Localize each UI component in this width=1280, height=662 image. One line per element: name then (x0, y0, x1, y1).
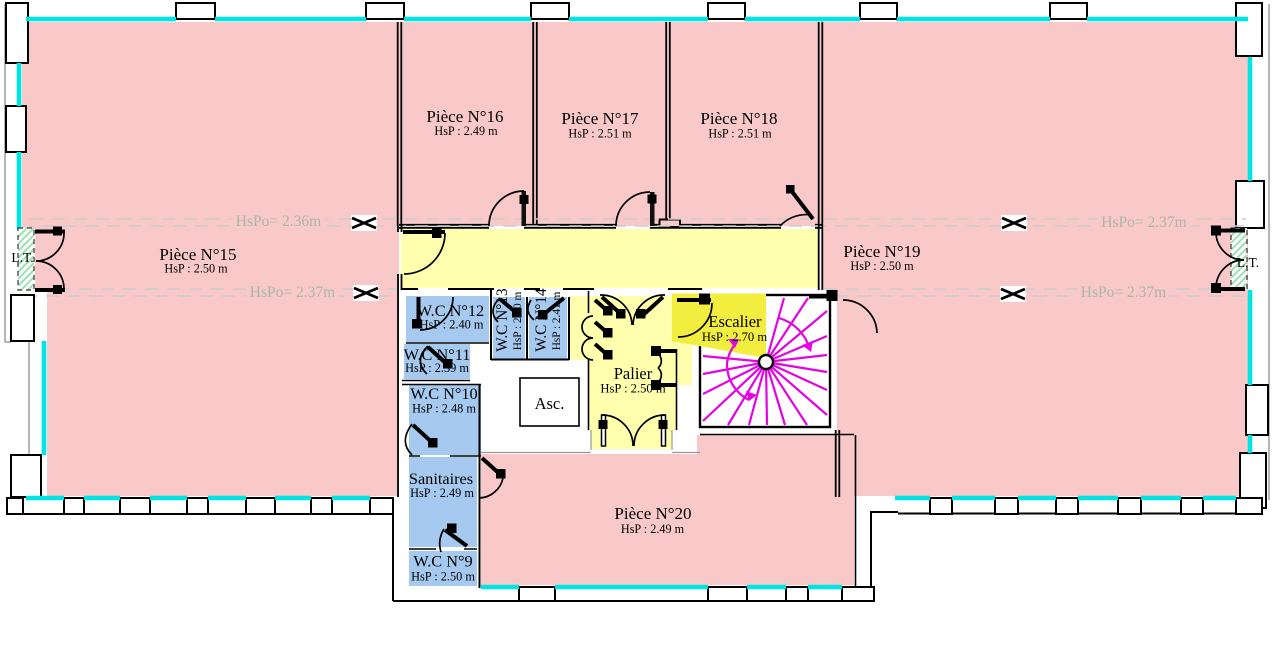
svg-text:W.C N°13: W.C N°13 (494, 288, 511, 352)
svg-text:HsP : 2.41 m: HsP : 2.41 m (551, 291, 563, 350)
svg-text:HsP : 2.50 m: HsP : 2.50 m (164, 262, 228, 276)
svg-text:L.T.: L.T. (11, 250, 33, 265)
svg-text:HsP : 2.50 m: HsP : 2.50 m (600, 382, 666, 396)
svg-text:HsP : 2.70 m: HsP : 2.70 m (702, 330, 768, 344)
svg-text:HsP : 2.51 m: HsP : 2.51 m (568, 127, 632, 141)
svg-text:HsP : 2.49 m: HsP : 2.49 m (621, 522, 685, 536)
svg-text:W.C N°14: W.C N°14 (533, 288, 550, 352)
svg-text:HsP : 2.39 m: HsP : 2.39 m (405, 361, 469, 375)
svg-text:Pièce N°17: Pièce N°17 (561, 109, 639, 128)
svg-text:HsP : 2.51 m: HsP : 2.51 m (708, 127, 772, 141)
svg-text:HsPo= 2.37m: HsPo= 2.37m (1081, 284, 1166, 301)
svg-text:HsPo= 2.36m: HsPo= 2.36m (236, 213, 321, 230)
svg-text:HsP : 2.48 m: HsP : 2.48 m (412, 402, 476, 416)
svg-text:W.C N°9: W.C N°9 (413, 552, 472, 571)
svg-text:Pièce N°20: Pièce N°20 (614, 504, 691, 523)
svg-text:HsPo= 2.37m: HsPo= 2.37m (250, 284, 335, 301)
svg-text:HsP : 2.49 m: HsP : 2.49 m (434, 124, 498, 138)
svg-text:HsP : 2.49 m: HsP : 2.49 m (410, 486, 474, 500)
svg-text:HsPo= 2.37m: HsPo= 2.37m (1101, 214, 1186, 231)
svg-text:HsP : 2.40 m: HsP : 2.40 m (512, 291, 524, 350)
svg-text:Pièce N°18: Pièce N°18 (700, 109, 777, 128)
svg-text:HsP : 2.50 m: HsP : 2.50 m (411, 570, 475, 584)
svg-text:HsP : 2.40 m: HsP : 2.40 m (420, 318, 484, 332)
svg-text:Palier: Palier (614, 364, 653, 383)
svg-text:Escalier: Escalier (708, 312, 762, 331)
svg-text:W.C N°10: W.C N°10 (410, 384, 477, 403)
svg-text:L.T.: L.T. (1237, 255, 1259, 270)
svg-text:Asc.: Asc. (535, 394, 565, 413)
svg-text:HsP : 2.50 m: HsP : 2.50 m (850, 259, 914, 273)
